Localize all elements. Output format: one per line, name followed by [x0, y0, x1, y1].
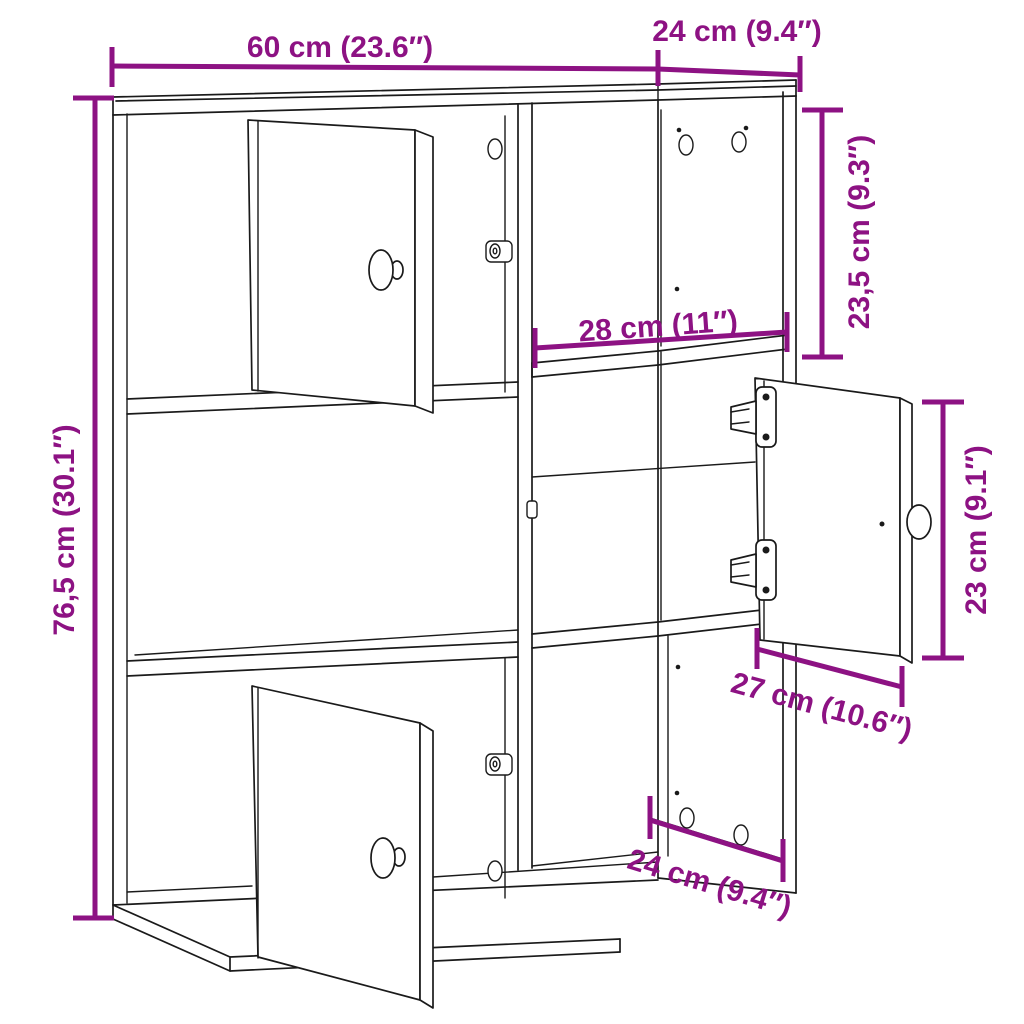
dimension-door-height-right-label: 23 cm (9.1″)	[960, 445, 993, 614]
cabinet-top-panel	[113, 80, 796, 115]
cam-lock-fitting	[486, 241, 512, 262]
dowel-dot	[675, 287, 680, 292]
shelf-pin-hole	[488, 139, 502, 159]
dimension-door-height-right: 23 cm (9.1″)	[922, 402, 993, 658]
dimension-width-top: 60 cm (23.6″)	[112, 31, 658, 87]
hinge-plate	[527, 501, 537, 518]
dimension-upper-section-height: 23,5 cm (9.3″)	[802, 110, 876, 357]
door-middle-right	[731, 378, 931, 663]
cam-lock-fitting	[486, 754, 512, 775]
diagram-canvas: 60 cm (23.6″) 24 cm (9.4″) 76,5 cm (30.1…	[0, 0, 1024, 1024]
shelf-pin-hole	[679, 135, 693, 155]
dowel-dot	[676, 665, 681, 670]
dimension-depth-bottom: 24 cm (9.4″)	[624, 796, 796, 924]
door-top-left	[248, 120, 433, 413]
hinge-icon	[731, 540, 776, 600]
furniture-dimension-diagram: 60 cm (23.6″) 24 cm (9.4″) 76,5 cm (30.1…	[0, 0, 1024, 1024]
door-bottom-left	[252, 686, 433, 1008]
dimension-door-width-right-label: 27 cm (10.6″)	[727, 666, 915, 746]
cabinet-line-art	[113, 80, 931, 1008]
dowel-dot	[675, 791, 680, 796]
dimension-upper-section-height-label: 23,5 cm (9.3″)	[843, 135, 876, 329]
back-panel-details	[486, 126, 748, 881]
shelf-pin-hole	[488, 861, 502, 881]
shelf-pin-hole	[734, 825, 748, 845]
shelf-pin-hole	[732, 132, 746, 152]
dimension-inner-shelf-width-label: 28 cm (11″)	[577, 304, 738, 348]
dimension-height-left: 76,5 cm (30.1″)	[48, 98, 114, 918]
shelf-pin-hole	[680, 808, 694, 828]
dowel-dot	[677, 128, 682, 133]
dimension-width-top-label: 60 cm (23.6″)	[247, 31, 433, 64]
hinge-icon	[731, 387, 776, 447]
dimension-height-left-label: 76,5 cm (30.1″)	[48, 424, 81, 635]
dimension-depth-top-label: 24 cm (9.4″)	[652, 15, 821, 48]
cabinet-carcass	[113, 92, 796, 905]
dowel-dot	[744, 126, 749, 131]
